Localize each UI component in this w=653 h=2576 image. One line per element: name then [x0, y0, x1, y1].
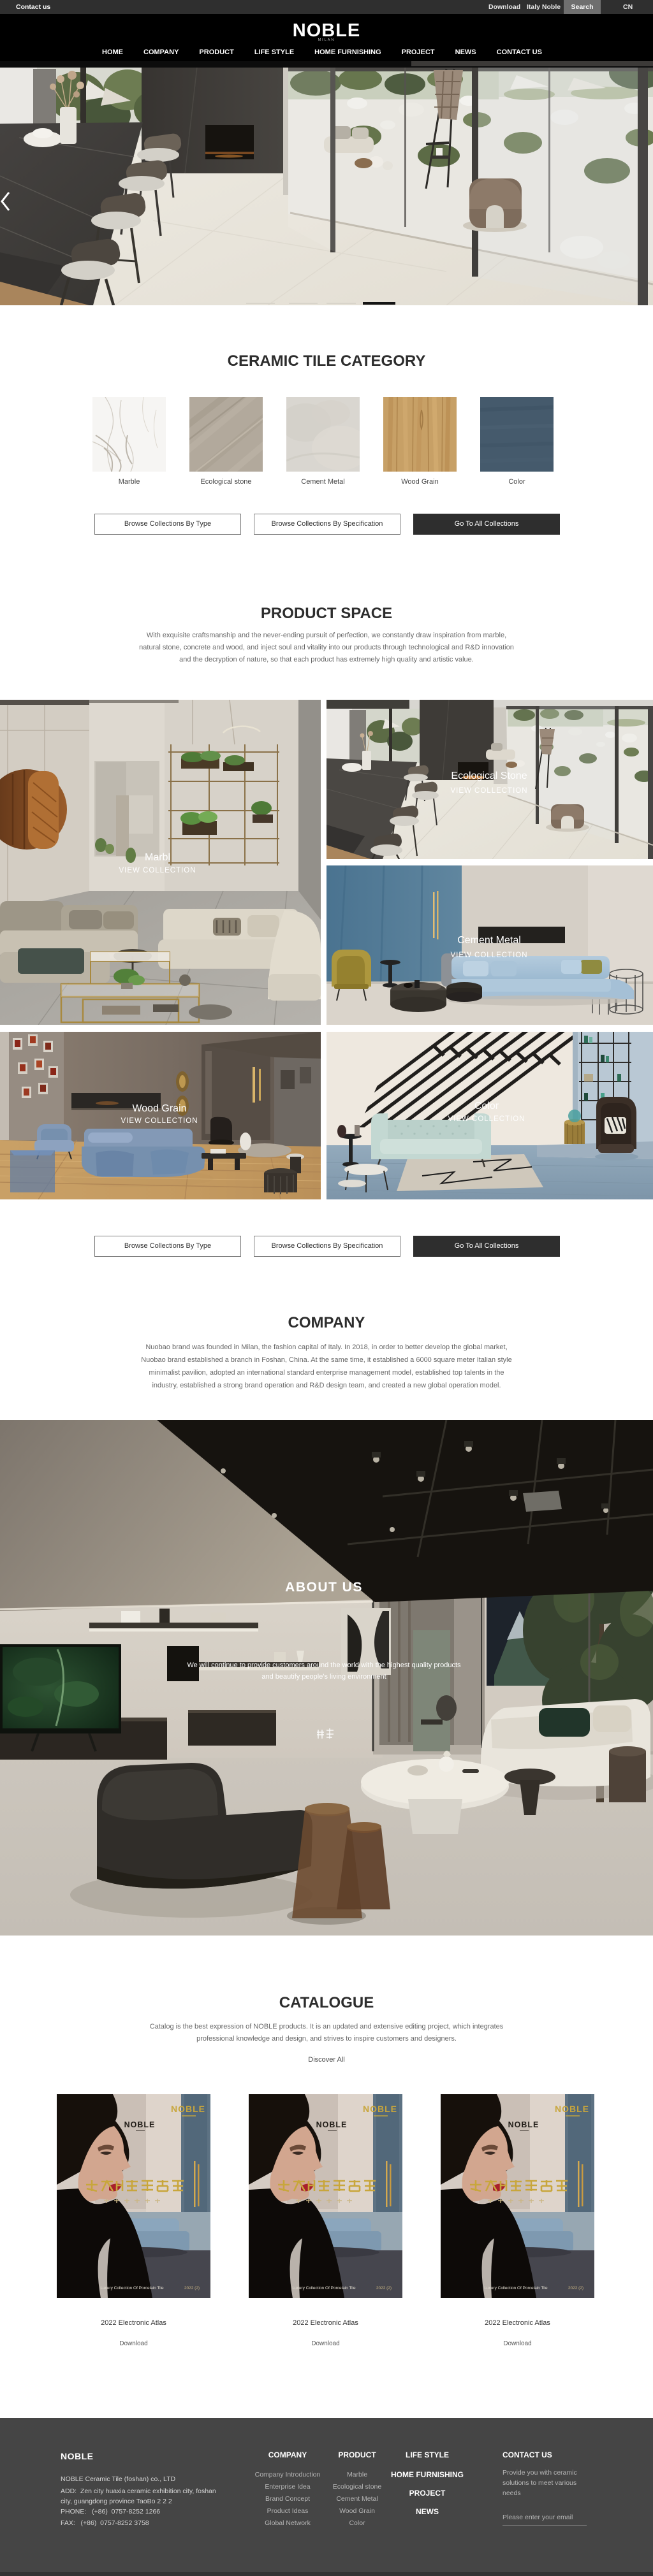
svg-text:We will continue to provide cu: We will continue to provide customers ar… [187, 1661, 461, 1669]
svg-text:Ecological Stone: Ecological Stone [451, 771, 527, 781]
svg-text:Marbl: Marbl [145, 852, 170, 863]
svg-text:Wood Grain: Wood Grain [132, 1103, 186, 1114]
svg-text:Cement Metal: Cement Metal [457, 935, 521, 946]
svg-text:VIEW COLLECTION: VIEW COLLECTION [450, 952, 527, 959]
svg-text:ABOUT US: ABOUT US [285, 1580, 363, 1595]
svg-text:VIEW COLLECTION: VIEW COLLECTION [448, 1115, 525, 1123]
svg-text:VIEW COLLECTION: VIEW COLLECTION [450, 787, 527, 795]
svg-text:and beautify people's living e: and beautify people's living environment [261, 1673, 386, 1681]
svg-text:VIEW COLLECTION: VIEW COLLECTION [121, 1117, 198, 1125]
svg-text:VIEW COLLECTION: VIEW COLLECTION [119, 867, 196, 874]
svg-text:Color: Color [474, 1101, 499, 1111]
